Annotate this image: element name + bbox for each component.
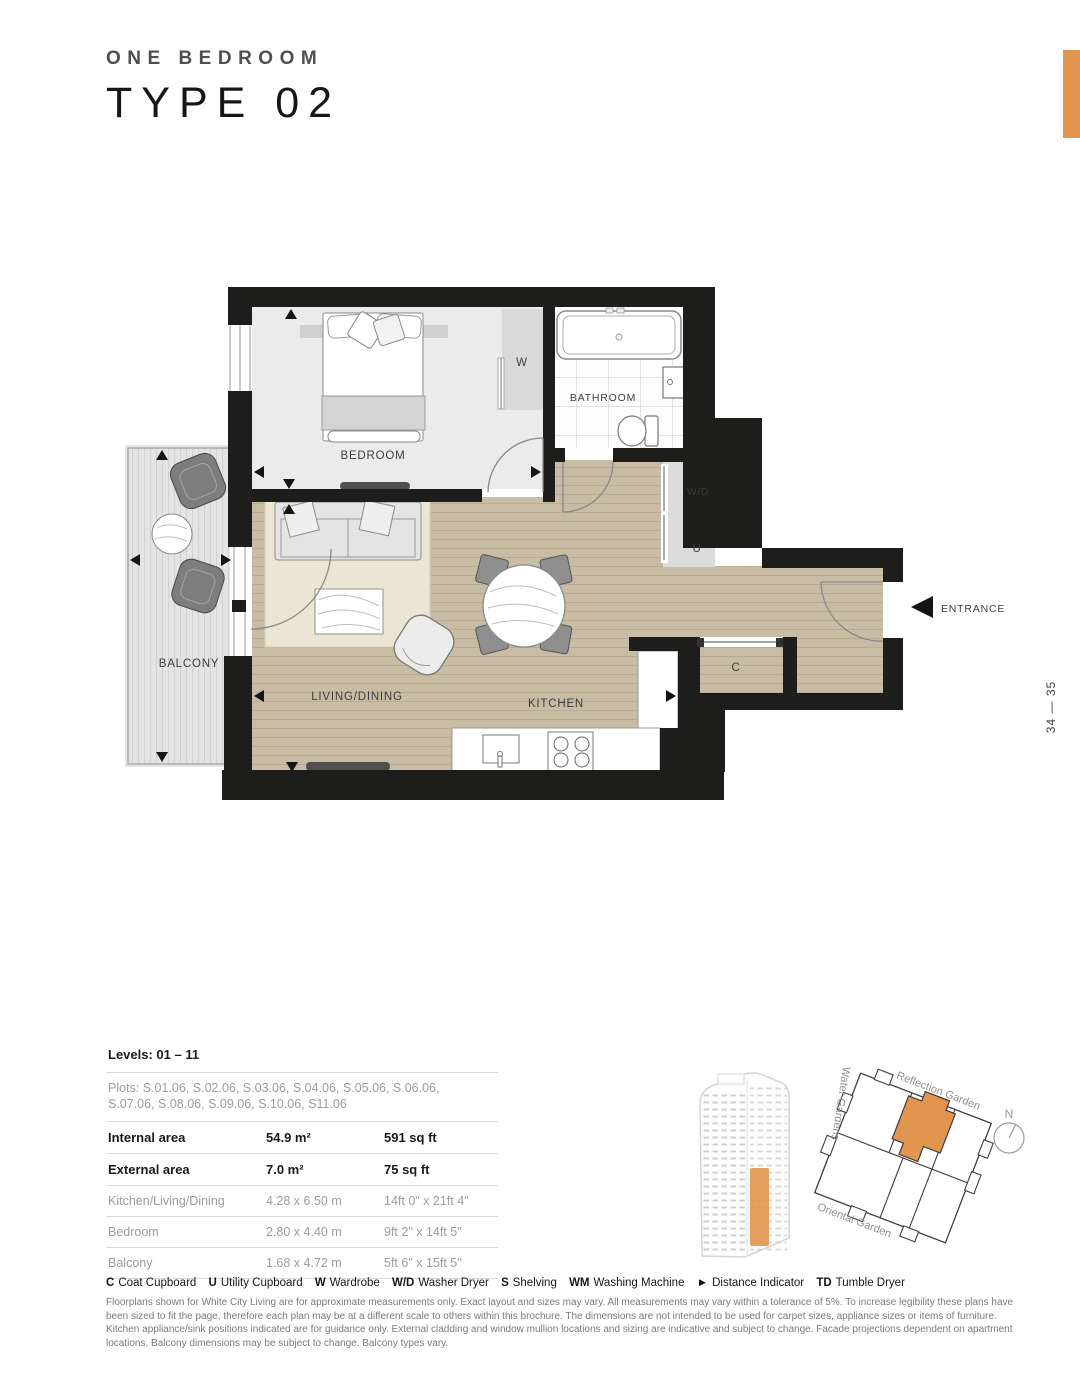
apartment-category: ONE BEDROOM	[106, 48, 341, 70]
row-imperial: 591 sq ft	[384, 1130, 498, 1145]
duvet	[322, 396, 425, 430]
disclaimer-line: locations. Balcony dimensions may be sub…	[106, 1337, 1021, 1351]
basin	[663, 367, 686, 398]
row-imperial: 5ft 6" x 15ft 5"	[384, 1256, 498, 1270]
compass-needle	[1009, 1124, 1016, 1138]
row-label: Kitchen/Living/Dining	[108, 1194, 266, 1208]
entrance-label: ENTRANCE	[941, 603, 1005, 615]
page-header: ONE BEDROOM TYPE 02	[106, 48, 341, 128]
legend-item: CCoat Cupboard	[106, 1277, 196, 1289]
row-metric: 2.80 x 4.40 m	[266, 1225, 384, 1239]
balcony-table	[152, 514, 192, 554]
legend-item: ►Distance Indicator	[697, 1277, 804, 1289]
building-illustration	[700, 1073, 789, 1257]
tv-unit	[340, 482, 410, 490]
highlighted-apartments	[750, 1168, 769, 1246]
legend-item: TDTumble Dryer	[816, 1277, 905, 1289]
legend-item: W/DWasher Dryer	[392, 1277, 489, 1289]
coat-cupboard-label: C	[731, 662, 740, 674]
disclaimer-line: been sized to fit the page, therefore ea…	[106, 1310, 1021, 1324]
entrance-opening	[883, 582, 903, 638]
row-label: Bedroom	[108, 1225, 266, 1239]
row-imperial: 75 sq ft	[384, 1162, 498, 1177]
tower-windows	[703, 1092, 745, 1252]
toilet-cistern	[645, 416, 658, 446]
row-metric: 54.9 m²	[266, 1130, 384, 1145]
washer-dryer-label: W/D	[687, 487, 709, 498]
plots-line2: S.07.06, S.08.06, S.09.06, S.10.06, S11.…	[108, 1097, 498, 1113]
coat-cupboard-floor	[700, 645, 783, 693]
distance-indicator-icon: ►	[697, 1277, 708, 1289]
sofa-pillow	[359, 500, 395, 536]
specification-table: Levels: 01 – 11 Plots: S.01.06, S.02.06,…	[106, 1042, 498, 1279]
disclaimer: Floorplans shown for White City Living a…	[106, 1296, 1021, 1350]
north-label: N	[1005, 1107, 1014, 1121]
toilet-bowl	[618, 416, 646, 446]
bath-tap	[617, 308, 624, 313]
dining-set	[475, 554, 573, 655]
row-label: Internal area	[108, 1130, 266, 1145]
table-row: Bedroom 2.80 x 4.40 m 9ft 2" x 14ft 5"	[106, 1217, 498, 1248]
legend-item: UUtility Cupboard	[209, 1277, 303, 1289]
hallway-floor	[600, 566, 883, 637]
plots-line1: Plots: S.01.06, S.02.06, S.03.06, S.04.0…	[108, 1081, 498, 1097]
row-label: Balcony	[108, 1256, 266, 1270]
kitchen-label: KITCHEN	[528, 698, 584, 710]
coffee-table	[315, 589, 383, 634]
hallway-ext-floor	[797, 637, 883, 695]
plots-row: Plots: S.01.06, S.02.06, S.03.06, S.04.0…	[106, 1073, 498, 1122]
compass: N	[994, 1107, 1024, 1153]
row-metric: 7.0 m²	[266, 1162, 384, 1177]
wardrobe-label: W	[516, 357, 528, 369]
sink-tap	[498, 756, 502, 767]
corridor-floor	[555, 460, 663, 570]
page-title: TYPE 02	[106, 79, 341, 128]
balcony-label: BALCONY	[159, 658, 220, 670]
floor-plan: BEDROOM BATHROOM W W/D U C BALCONY LIVIN…	[100, 270, 1020, 815]
disclaimer-line: Kitchen appliance/sink positions indicat…	[106, 1323, 1021, 1337]
bathroom-label: BATHROOM	[570, 392, 636, 404]
legend-item: SShelving	[501, 1277, 557, 1289]
row-label: External area	[108, 1162, 266, 1177]
row-metric: 1.68 x 4.72 m	[266, 1256, 384, 1270]
page-number: 34 — 35	[1044, 664, 1058, 750]
tower-roof	[718, 1074, 744, 1084]
living-dining-label: LIVING/DINING	[311, 691, 403, 703]
table-row: Balcony 1.68 x 4.72 m 5ft 6" x 15ft 5"	[106, 1248, 498, 1279]
location-graphics: Reflection Garden Oriental Garden Water …	[660, 1058, 1040, 1270]
table-row: External area 7.0 m² 75 sq ft	[106, 1154, 498, 1186]
legend-item: WMWashing Machine	[569, 1277, 684, 1289]
sofa	[275, 500, 421, 560]
row-imperial: 14ft 0" x 21ft 4"	[384, 1194, 498, 1208]
row-imperial: 9ft 2" x 14ft 5"	[384, 1225, 498, 1239]
plan-legend: CCoat Cupboard UUtility Cupboard WWardro…	[106, 1277, 1036, 1289]
site-plan: Reflection Garden Oriental Garden Water …	[788, 1058, 1006, 1263]
utility-label: U	[692, 543, 701, 555]
mullion	[232, 600, 246, 612]
disclaimer-line: Floorplans shown for White City Living a…	[106, 1296, 1021, 1310]
bedroom-label: BEDROOM	[340, 450, 405, 462]
bathtub	[557, 311, 681, 359]
table-row: Internal area 54.9 m² 591 sq ft	[106, 1122, 498, 1154]
media-unit	[306, 762, 390, 771]
table-row: Kitchen/Living/Dining 4.28 x 6.50 m 14ft…	[106, 1186, 498, 1217]
section-accent-tab	[1063, 50, 1080, 138]
legend-item: WWardrobe	[315, 1277, 380, 1289]
bath-tap	[606, 308, 613, 313]
row-metric: 4.28 x 6.50 m	[266, 1194, 384, 1208]
wardrobe-door	[498, 358, 504, 409]
bed-footboard	[328, 431, 420, 442]
levels-row: Levels: 01 – 11	[106, 1042, 498, 1073]
entrance-arrow-icon	[911, 596, 933, 618]
